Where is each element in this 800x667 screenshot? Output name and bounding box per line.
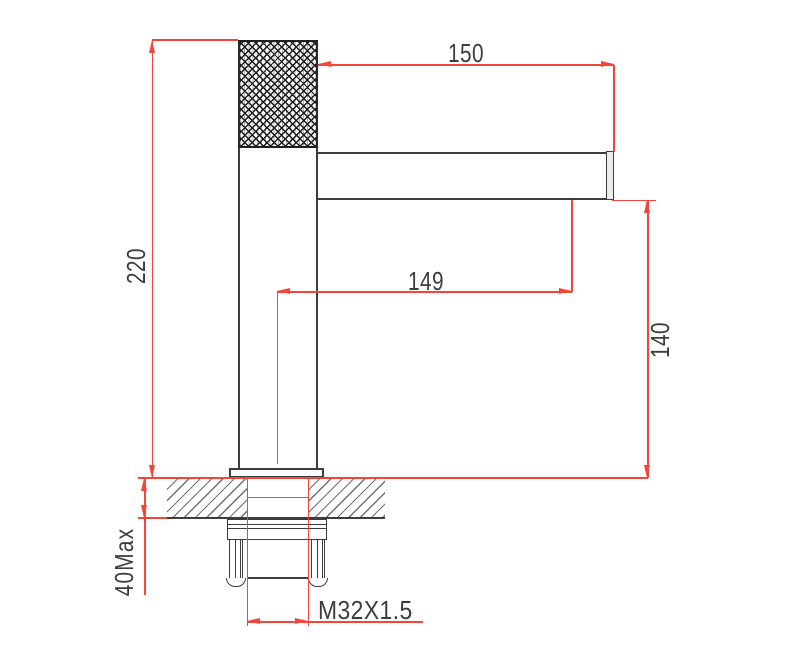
dim-label-140: 140 bbox=[650, 316, 670, 364]
countertop-hatch-left bbox=[167, 479, 247, 518]
counter-surface-line bbox=[138, 477, 648, 479]
dim-label-220: 220 bbox=[126, 242, 146, 290]
dim-label-40max: 40Max bbox=[114, 526, 134, 598]
knurled-handle bbox=[238, 40, 318, 148]
dim-line-220 bbox=[152, 40, 154, 478]
bolt-cap-right bbox=[308, 578, 328, 587]
ext-line-149-right bbox=[571, 200, 573, 292]
shank-bottom-edge bbox=[247, 577, 308, 579]
ext-line-220-top bbox=[152, 39, 238, 41]
arrow-140-bottom bbox=[644, 465, 650, 478]
arrow-220-bottom bbox=[149, 465, 155, 478]
arrow-40max-top bbox=[141, 478, 147, 491]
faucet-body-right-edge bbox=[316, 148, 318, 468]
mounting-nut bbox=[227, 528, 327, 540]
technical-drawing-canvas: 150 220 149 140 40Max M32X1.5 bbox=[0, 0, 800, 667]
spout-top-edge bbox=[318, 152, 606, 154]
arrow-220-top bbox=[149, 40, 155, 53]
bolt-cap-left bbox=[226, 578, 246, 587]
countertop-hatch-right bbox=[309, 479, 385, 518]
arrow-150-left bbox=[318, 61, 331, 67]
mounting-bolt-right-inner bbox=[317, 539, 323, 578]
faucet-body-left-edge bbox=[238, 148, 240, 468]
dim-label-150: 150 bbox=[442, 43, 490, 63]
dim-line-40max bbox=[144, 478, 146, 595]
ext-line-40max-bottom bbox=[138, 517, 167, 519]
dim-label-149: 149 bbox=[402, 271, 450, 291]
dim-label-m32: M32X1.5 bbox=[318, 600, 424, 620]
shank-line-right bbox=[308, 479, 310, 626]
shank-cross-line bbox=[247, 497, 308, 499]
ext-line-150-right bbox=[613, 65, 615, 152]
spout-end-cap bbox=[606, 151, 614, 200]
arrow-149-left bbox=[277, 288, 290, 294]
mounting-bolt-left-inner bbox=[235, 539, 241, 578]
arrow-m32-left bbox=[247, 618, 260, 624]
center-line bbox=[277, 292, 279, 464]
spout-bottom-edge bbox=[318, 198, 606, 200]
arrow-m32-right bbox=[295, 618, 308, 624]
arrow-140-top bbox=[644, 200, 650, 213]
shank-line-left bbox=[247, 479, 249, 626]
